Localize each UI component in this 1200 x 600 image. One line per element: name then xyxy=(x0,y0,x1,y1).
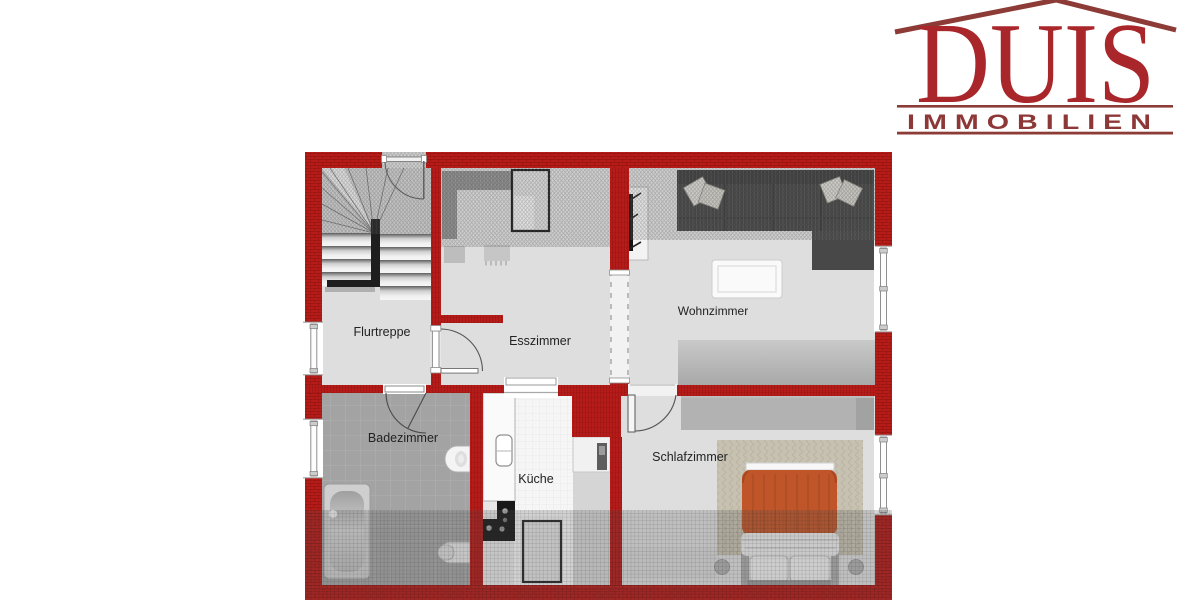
svg-text:IMMOBILIEN: IMMOBILIEN xyxy=(907,110,1159,134)
svg-text:Wohnzimmer: Wohnzimmer xyxy=(678,304,748,318)
svg-text:Küche: Küche xyxy=(518,472,553,486)
svg-text:Esszimmer: Esszimmer xyxy=(509,334,571,348)
svg-text:Flurtreppe: Flurtreppe xyxy=(354,325,411,339)
svg-text:DUIS: DUIS xyxy=(916,0,1155,128)
svg-text:Schlafzimmer: Schlafzimmer xyxy=(652,450,728,464)
svg-text:Badezimmer: Badezimmer xyxy=(368,431,438,445)
